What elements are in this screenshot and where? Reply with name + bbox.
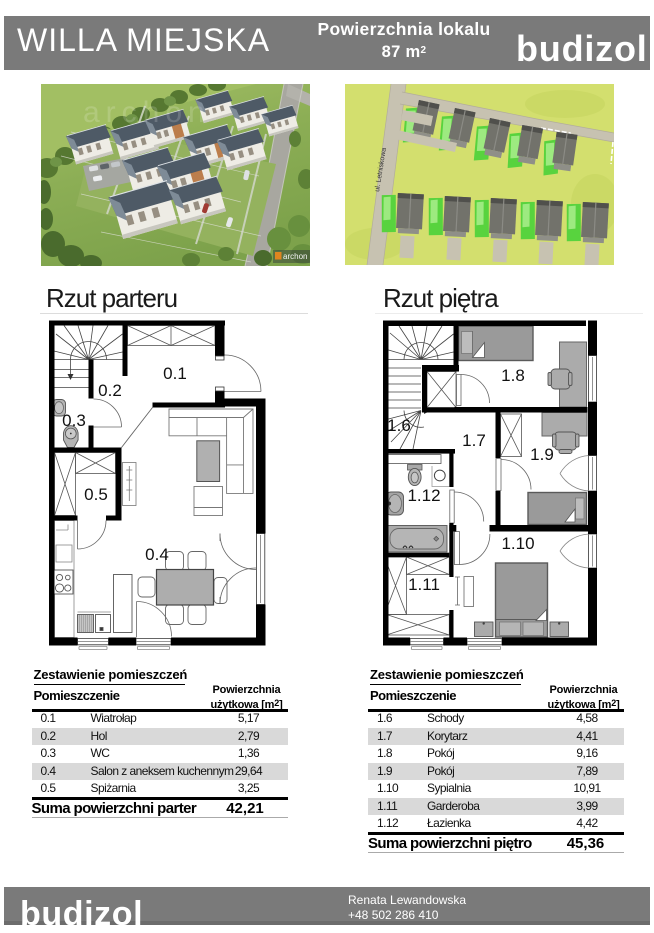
svg-text:1.11: 1.11	[408, 575, 440, 594]
svg-text:0.5: 0.5	[84, 485, 108, 504]
svg-text:1.9: 1.9	[530, 445, 554, 464]
svg-text:0.1: 0.1	[163, 364, 187, 383]
svg-text:archon: archon	[83, 96, 211, 129]
svg-text:1.10: 1.10	[501, 534, 534, 553]
svg-text:0.2: 0.2	[98, 381, 122, 400]
svg-text:1.7: 1.7	[462, 431, 486, 450]
svg-text:0.4: 0.4	[145, 545, 169, 564]
svg-text:archon: archon	[283, 252, 307, 261]
svg-text:1.12: 1.12	[407, 486, 440, 505]
svg-text:1.8: 1.8	[501, 366, 525, 385]
svg-text:0.3: 0.3	[62, 411, 86, 430]
svg-text:1.6: 1.6	[387, 416, 411, 435]
